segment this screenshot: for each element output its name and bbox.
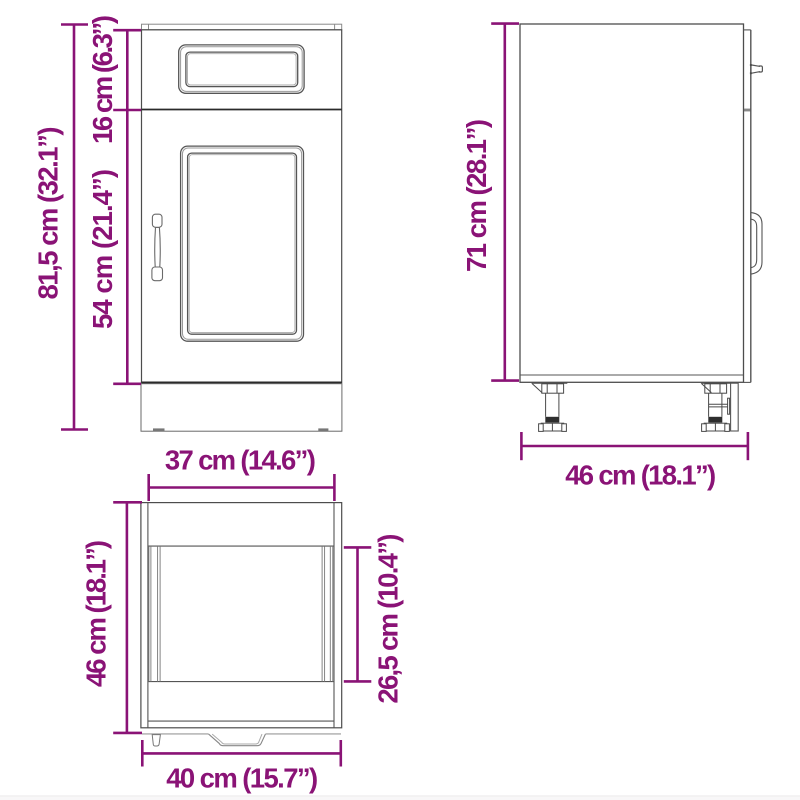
svg-text:16 cm (6.3”): 16 cm (6.3”) <box>87 15 118 144</box>
svg-text:26,5 cm (10.4”): 26,5 cm (10.4”) <box>372 534 403 704</box>
svg-text:46 cm (18.1”): 46 cm (18.1”) <box>565 459 716 490</box>
svg-text:54 cm (21.4”): 54 cm (21.4”) <box>87 169 118 329</box>
svg-text:81,5 cm (32.1”): 81,5 cm (32.1”) <box>33 127 64 300</box>
svg-text:71 cm (28.1”): 71 cm (28.1”) <box>461 119 492 272</box>
svg-text:40 cm (15.7”): 40 cm (15.7”) <box>166 763 318 794</box>
svg-text:37 cm (14.6”): 37 cm (14.6”) <box>165 444 316 475</box>
svg-text:46 cm (18.1”): 46 cm (18.1”) <box>80 540 111 687</box>
